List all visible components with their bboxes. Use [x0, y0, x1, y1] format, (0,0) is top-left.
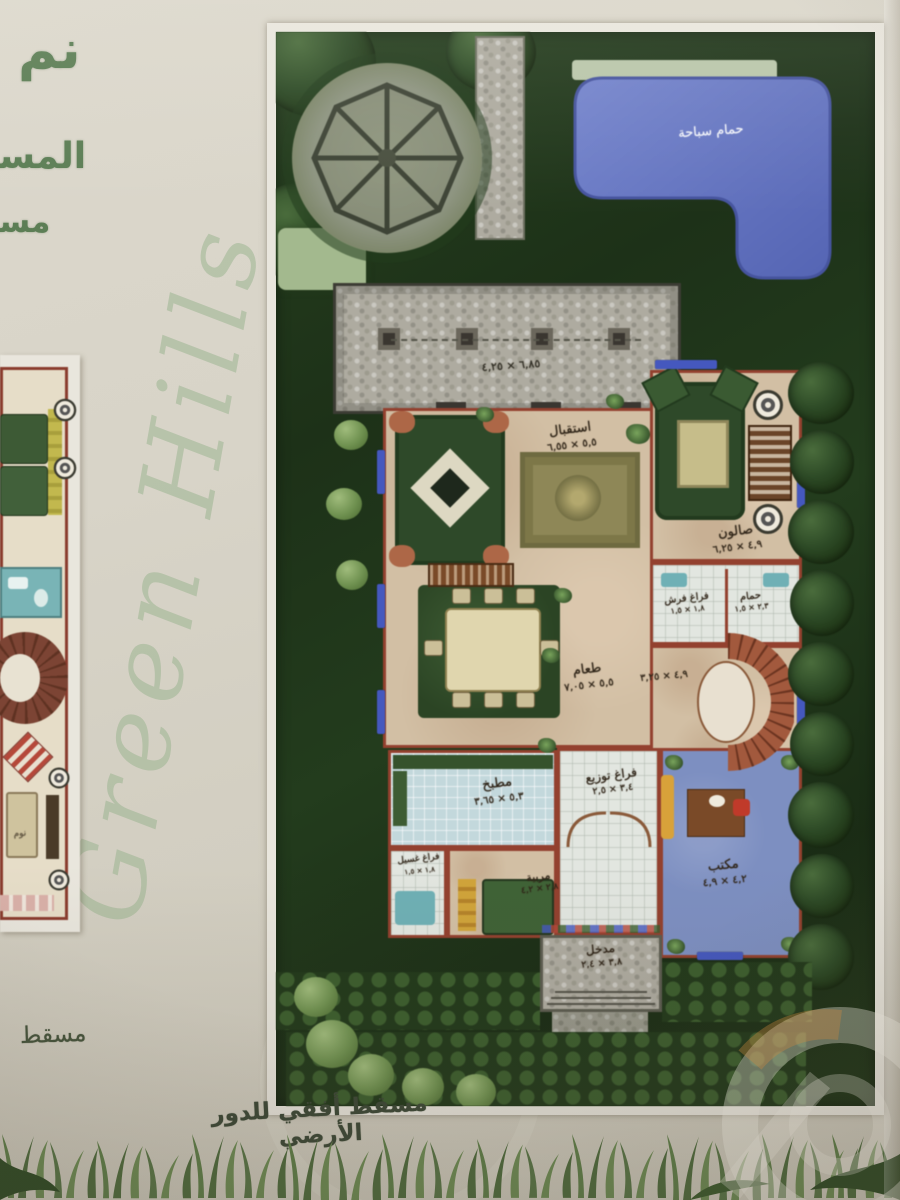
left-plan-pink-bed — [0, 895, 54, 911]
piano — [748, 425, 792, 501]
tree — [788, 642, 854, 706]
plant — [606, 394, 624, 409]
sideboard — [428, 563, 514, 587]
bush — [336, 560, 368, 590]
bath-fixture — [8, 577, 28, 589]
window-marker — [697, 952, 743, 960]
tree — [788, 500, 854, 564]
bush — [294, 977, 338, 1017]
header-partial-line2: مسا — [0, 204, 50, 240]
bath-fixture — [661, 573, 687, 587]
salon-rug — [677, 420, 729, 488]
office-chair — [733, 799, 750, 816]
plant — [554, 588, 572, 603]
left-plan-bed1 — [0, 414, 48, 464]
left-plan-bathroom — [0, 567, 62, 618]
flower-row — [542, 925, 660, 933]
tree — [788, 362, 854, 424]
wardrobe — [458, 879, 476, 931]
main-plan: حمام سباحة ٦,٨٥ × ٤,٢٥ — [276, 32, 875, 1106]
plant — [538, 738, 556, 753]
window-marker — [377, 584, 385, 628]
left-plan-caption: مسقط — [20, 1021, 87, 1049]
stairs-center — [0, 654, 40, 702]
left-plan-dresser — [46, 795, 59, 859]
double-door-arcs — [560, 809, 657, 849]
salon-seating — [655, 382, 745, 520]
gazebo-pergola — [292, 63, 482, 253]
office-sofa — [661, 775, 674, 839]
left-plan: نوم — [0, 355, 80, 932]
bush — [326, 488, 362, 520]
bush — [306, 1020, 358, 1068]
office-floor — [660, 748, 802, 958]
staircase — [670, 632, 794, 772]
side-table — [49, 870, 70, 891]
reception-seating — [395, 415, 505, 565]
tree — [790, 570, 854, 636]
stone-path — [475, 36, 525, 240]
window-marker — [655, 360, 717, 369]
plant — [476, 407, 494, 422]
dining-table — [445, 608, 541, 692]
left-plan-bed2 — [0, 466, 48, 516]
salon-table — [753, 390, 783, 420]
side-table — [49, 768, 70, 789]
window-marker — [377, 690, 385, 734]
terrace — [333, 283, 681, 414]
bush — [456, 1074, 496, 1106]
plant — [542, 648, 560, 663]
porch-step — [551, 997, 651, 999]
kitchen-counter — [393, 755, 553, 769]
desk-lamp — [709, 795, 725, 807]
medallion-rug — [520, 452, 640, 548]
tree — [790, 854, 854, 918]
window-marker — [377, 450, 385, 494]
side-table — [54, 457, 77, 480]
left-plan-bed3 — [6, 792, 38, 858]
main-plan-frame: حمام سباحة ٦,٨٥ × ٤,٢٥ — [267, 23, 884, 1115]
bush — [334, 420, 368, 450]
room-label-entrance: مدخل٣,٨ × ٢,٤ — [567, 939, 635, 973]
bush — [348, 1054, 394, 1096]
tree — [790, 430, 854, 494]
rug-medallion — [555, 475, 601, 521]
brochure-page: نم المسا مسا Green Hills نوم مسقط — [0, 0, 900, 1200]
bath-fixture — [34, 589, 48, 607]
header-partial-line1: المسا — [0, 136, 86, 177]
logo-watermark — [690, 1000, 900, 1200]
tree — [790, 712, 854, 776]
tree — [788, 782, 854, 848]
kitchen-counter — [393, 771, 407, 826]
left-plan-stairs — [0, 632, 68, 724]
swimming-pool — [566, 70, 841, 285]
terrace-guide — [391, 339, 641, 341]
side-table — [54, 399, 77, 422]
plant — [626, 424, 650, 444]
header-big-text: نم — [18, 18, 81, 81]
porch-step — [555, 991, 647, 993]
left-plan-rug2 — [3, 732, 54, 783]
bath-fixture — [395, 891, 435, 925]
gazebo — [292, 63, 482, 253]
plant — [667, 939, 685, 954]
porch-step — [547, 1003, 655, 1005]
bath-fixture — [763, 573, 789, 587]
